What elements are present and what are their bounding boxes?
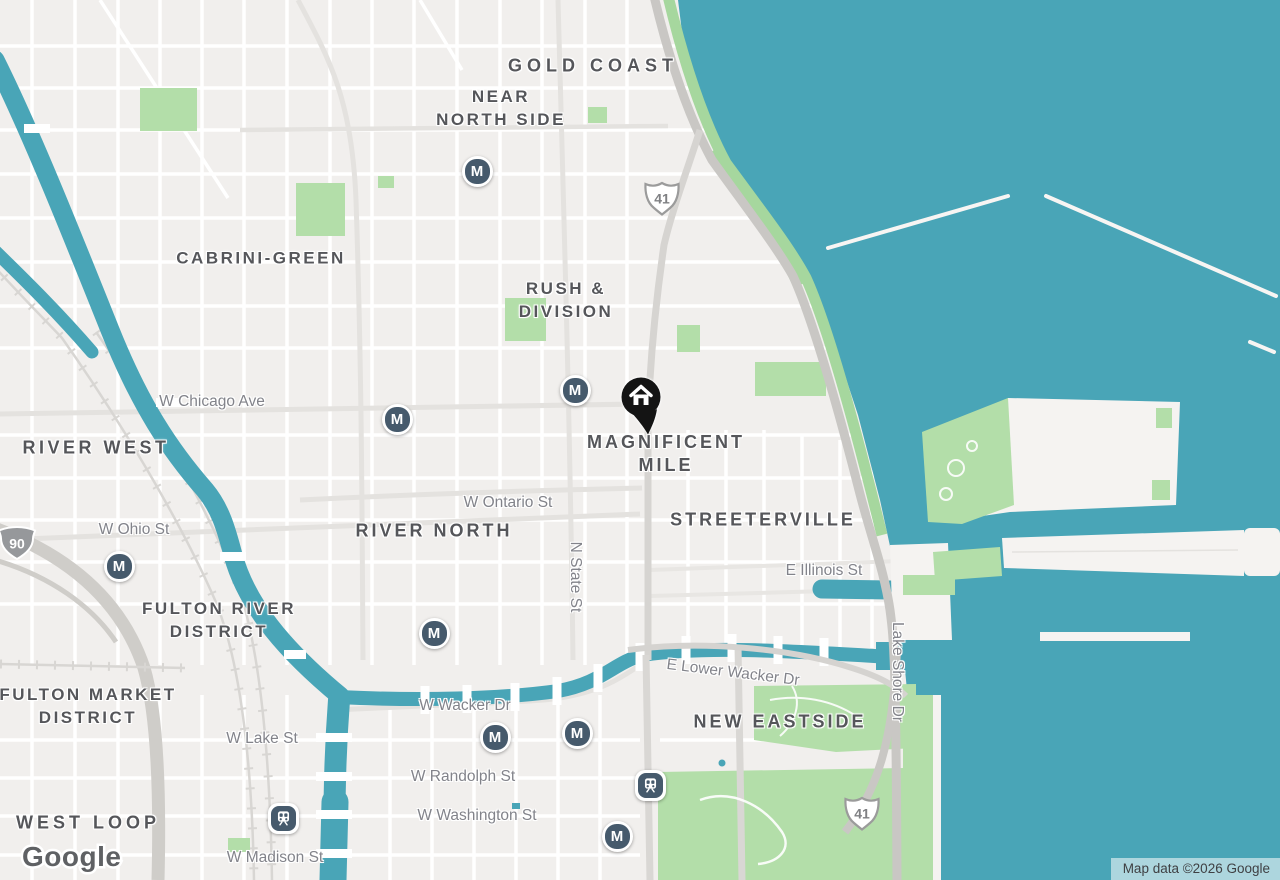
shield-number: 90: [9, 536, 25, 552]
street-label-w-washington-st: W Washington St: [417, 807, 536, 825]
map-attribution: Map data ©2026 Google: [1111, 858, 1280, 880]
street-label-lake-shore-dr: Lake Shore Dr: [888, 622, 906, 722]
street-label-w-randolph-st: W Randolph St: [411, 768, 515, 786]
neighborhood-label-river-north: RIVER NORTH: [355, 520, 512, 543]
metro-station-marker[interactable]: M: [480, 722, 511, 753]
train-station-marker[interactable]: [635, 770, 666, 801]
train-icon: [271, 806, 296, 831]
street-label-e-lower-wacker-dr: E Lower Wacker Dr: [666, 656, 801, 690]
google-logo[interactable]: Google: [18, 836, 138, 880]
us-route-shield: 41: [842, 796, 882, 837]
metro-letter: M: [471, 163, 484, 180]
street-label-w-ontario-st: W Ontario St: [464, 494, 553, 512]
metro-station-marker[interactable]: M: [462, 156, 493, 187]
street-label-w-lake-st: W Lake St: [226, 730, 298, 748]
street-label-w-chicago-ave: W Chicago Ave: [159, 393, 265, 411]
metro-letter: M: [113, 558, 126, 575]
metro-letter: M: [391, 411, 404, 428]
metro-letter: M: [569, 382, 582, 399]
neighborhood-label-west-loop: WEST LOOP: [16, 812, 160, 835]
shield-number: 41: [854, 806, 870, 822]
neighborhood-label-rush-division: RUSH &DIVISION: [519, 277, 614, 323]
metro-station-marker[interactable]: M: [104, 551, 135, 582]
neighborhood-label-fulton-market-district: FULTON MARKETDISTRICT: [0, 683, 177, 729]
street-label-w-wacker-dr: W Wacker Dr: [419, 697, 511, 715]
metro-m-icon: M: [422, 621, 447, 646]
neighborhood-label-near-north-side: NEARNORTH SIDE: [436, 85, 566, 131]
metro-m-icon: M: [563, 378, 588, 403]
neighborhood-label-river-west: RIVER WEST: [22, 437, 169, 460]
street-label-n-state-st: N State St: [566, 542, 584, 613]
metro-m-icon: M: [385, 407, 410, 432]
metro-letter: M: [489, 729, 502, 746]
map-canvas[interactable]: GOLD COASTNEARNORTH SIDECABRINI-GREENRUS…: [0, 0, 1280, 880]
neighborhood-label-gold-coast: GOLD COAST: [508, 55, 678, 78]
neighborhood-label-cabrini-green: CABRINI-GREEN: [176, 247, 345, 270]
google-logo-text: Google: [22, 841, 121, 872]
train-station-marker[interactable]: [268, 803, 299, 834]
us-route-shield: 41: [642, 181, 682, 222]
metro-station-marker[interactable]: M: [382, 404, 413, 435]
street-label-e-illinois-st: E Illinois St: [786, 562, 863, 580]
shield-number: 41: [654, 191, 670, 207]
street-label-w-ohio-st: W Ohio St: [99, 521, 170, 539]
home-pin[interactable]: [613, 373, 669, 449]
train-icon: [638, 773, 663, 798]
metro-m-icon: M: [483, 725, 508, 750]
metro-m-icon: M: [565, 721, 590, 746]
metro-m-icon: M: [107, 554, 132, 579]
neighborhood-label-streeterville: STREETERVILLE: [670, 509, 856, 532]
metro-station-marker[interactable]: M: [560, 375, 591, 406]
metro-m-icon: M: [605, 824, 630, 849]
metro-station-marker[interactable]: M: [562, 718, 593, 749]
metro-station-marker[interactable]: M: [602, 821, 633, 852]
street-label-w-madison-st: W Madison St: [227, 849, 323, 867]
neighborhood-label-fulton-river-district: FULTON RIVERDISTRICT: [142, 597, 296, 643]
metro-station-marker[interactable]: M: [419, 618, 450, 649]
metro-letter: M: [611, 828, 624, 845]
metro-m-icon: M: [465, 159, 490, 184]
neighborhood-label-new-eastside: NEW EASTSIDE: [693, 711, 866, 734]
interstate-shield: 90: [0, 526, 38, 567]
metro-letter: M: [571, 725, 584, 742]
metro-letter: M: [428, 625, 441, 642]
